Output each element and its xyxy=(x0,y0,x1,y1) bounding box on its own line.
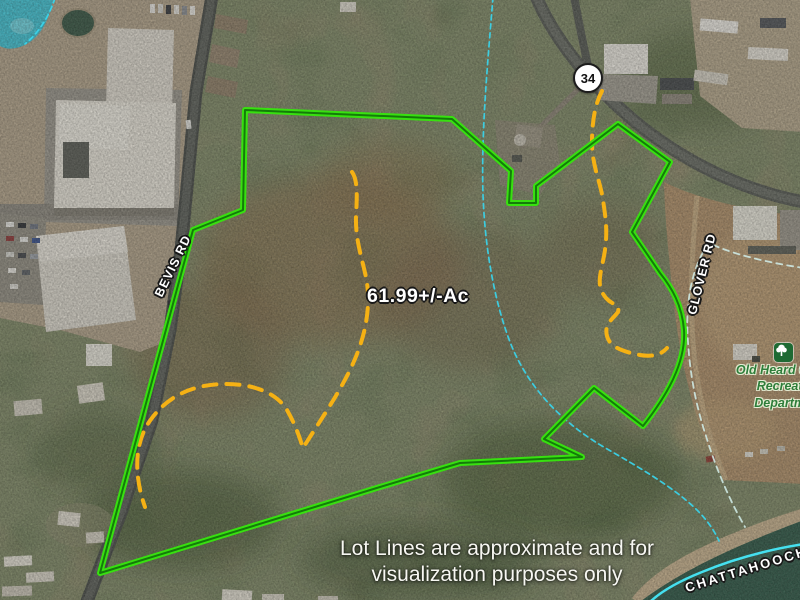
route-34-badge: 34 xyxy=(573,63,603,93)
satellite-map[interactable]: 34 BEVIS RD GLOVER RD 61.99+/-Ac Old Hea… xyxy=(0,0,800,600)
satellite-imagery xyxy=(0,0,800,600)
tree-icon xyxy=(774,343,793,362)
